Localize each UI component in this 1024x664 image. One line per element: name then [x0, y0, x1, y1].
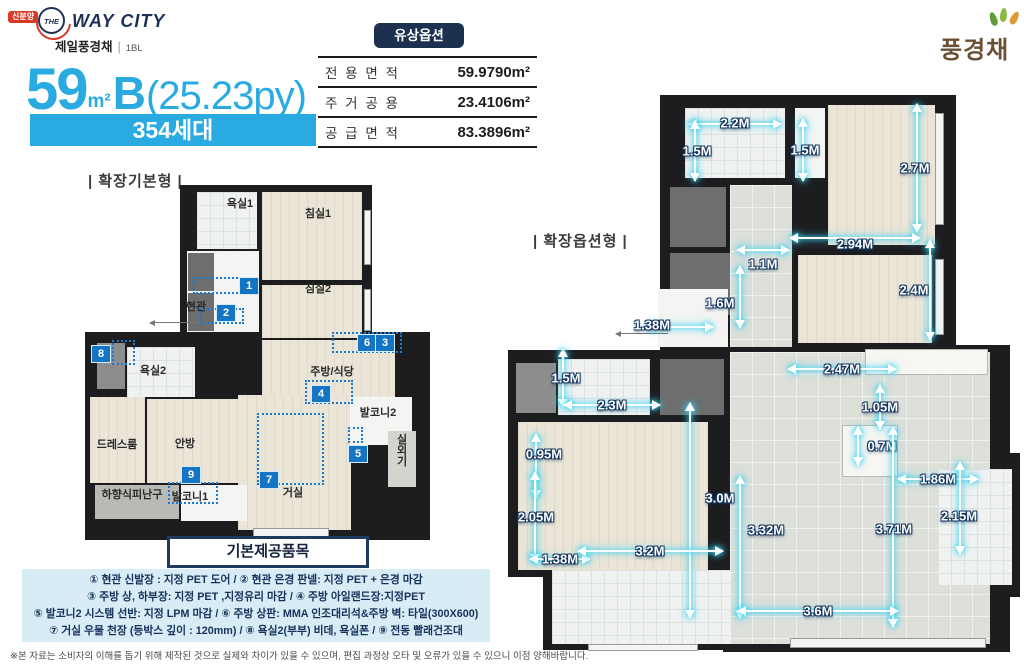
plan-marker: 2 [216, 304, 236, 322]
plan-marker: 5 [348, 445, 368, 463]
dimension-label: 3.71M [876, 522, 912, 537]
dimension-label: 1.38M [542, 552, 578, 567]
dimension-arrow [737, 249, 789, 251]
brand-name: WAY CITY [72, 11, 165, 32]
table-row: 주 거 공 용 23.4106m² [318, 86, 537, 116]
thewaycity-circle-icon: THE [38, 7, 65, 34]
plan-marker: 8 [91, 345, 111, 363]
room-label: 실외기 [393, 434, 409, 467]
dimension-label: 2.4M [900, 283, 929, 298]
dimension-arrow [739, 476, 741, 618]
plan-marker: 7 [259, 471, 279, 489]
dimension-label: 1.5M [683, 144, 712, 159]
unit-pyeong: (25.23py) [146, 74, 306, 118]
dotted-area [112, 340, 135, 365]
paid-option-badge: 유상옵션 [374, 23, 464, 48]
dimension-label: 3.0M [706, 491, 735, 506]
room-label: 욕실2 [140, 362, 166, 378]
dotted-area [193, 277, 245, 294]
subbrand-row: 제일풍경채|1BL [55, 36, 143, 55]
room-label: 침실2 [305, 280, 331, 296]
dimension-label: 3.2M [636, 544, 665, 559]
dimension-arrow [689, 403, 691, 618]
corp-logo-text: 풍경채 [940, 30, 1009, 65]
room-label: 현관 [186, 298, 206, 314]
unit-size: 59 [26, 57, 87, 122]
plan-marker: 9 [181, 466, 201, 484]
plan-marker: 6 [357, 334, 377, 352]
area-table: 전 용 면 적 59.9790m² 주 거 공 용 23.4106m² 공 급 … [318, 56, 537, 148]
disclaimer-note: ※본 자료는 소비자의 이해를 돕기 위해 제작된 것으로 실제와 차이가 있을… [10, 648, 588, 662]
room-label: 거실 [283, 484, 303, 500]
items-list: ① 현관 신발장 : 지정 PET 도어 / ② 현관 은경 판넬: 지정 PE… [22, 569, 490, 642]
dimension-label: 1.38M [634, 318, 670, 333]
flyer-page: 신분양 THE WAY CITY 제일풍경채|1BL 유상옵션 풍경채 59m²… [0, 0, 1024, 664]
area-value: 59.9790m² [457, 64, 530, 81]
leaf-icon [1008, 10, 1021, 26]
dimension-label: 1.5M [791, 143, 820, 158]
dimension-label: 2.3M [598, 398, 627, 413]
dotted-area [348, 427, 363, 443]
dimension-label: 2.94M [837, 237, 873, 252]
dimension-label: 1.86M [920, 472, 956, 487]
unit-title: 59m²B(25.23py) [26, 56, 306, 123]
dimension-label: 2.7M [901, 161, 930, 176]
table-row: 전 용 면 적 59.9790m² [318, 56, 537, 86]
room-label: 발코니1 [172, 488, 208, 504]
item-line: ③ 주방 상, 하부장: 지정 PET ,지정유리 마감 / ④ 주방 아일랜드… [22, 589, 490, 606]
dimension-label: 0.95M [526, 447, 562, 462]
dimension-label: 2.47M [824, 362, 860, 377]
floorplan-basic: 욕실1침실1침실2현관욕실2주방/식당발코니2드레스룸안방실외기하향식피난구발코… [85, 185, 430, 542]
dimension-label: 1.1M [749, 257, 778, 272]
dimension-arrow [929, 240, 931, 340]
table-row: 공 급 면 적 83.3896m² [318, 116, 537, 146]
new-sale-badge: 신분양 [8, 11, 38, 23]
dimension-label: 3.6M [804, 604, 833, 619]
logo-the-text: THE [40, 17, 63, 26]
room-label: 안방 [175, 435, 195, 451]
room-label: 하향식피난구 [102, 486, 163, 502]
plan-marker: 4 [311, 385, 331, 403]
item-line: ① 현관 신발장 : 지정 PET 도어 / ② 현관 은경 판넬: 지정 PE… [22, 572, 490, 589]
item-line: ⑦ 거실 우물 천장 (등박스 깊이 : 120mm) / ⑧ 욕실2(부부) … [22, 623, 490, 640]
unit-sqm: m² [88, 91, 111, 113]
leaf-icon [999, 8, 1007, 23]
item-line: ⑤ 발코니2 시스템 선반: 지정 LPM 마감 / ⑥ 주방 상판: MMA … [22, 606, 490, 623]
dimension-label: 3.32M [748, 523, 784, 538]
area-label: 주 거 공 용 [325, 92, 400, 112]
area-label: 전 용 면 적 [325, 62, 400, 82]
divider: | [118, 40, 121, 54]
items-box-title: 기본제공품목 [167, 536, 369, 568]
plan-marker: 1 [239, 277, 259, 295]
dimension-label: 2.2M [721, 116, 750, 131]
floorplan-option: 2.2M1.5M1.5M2.7M2.94M1.1M2.4M1.6M1.38M2.… [508, 95, 1020, 657]
dimension-label: 1.6M [706, 296, 735, 311]
unit-type: B [113, 67, 146, 119]
room-label: 주방/식당 [310, 363, 354, 379]
dimension-arrow [857, 427, 859, 465]
leaf-icon [988, 11, 999, 26]
households-band: 354세대 [30, 114, 316, 146]
plan-marker: 3 [375, 334, 395, 352]
corp-logo: 풍경채 [938, 8, 1024, 60]
dimension-label: 1.05M [862, 400, 898, 415]
plan-annotations: 욕실1침실1침실2현관욕실2주방/식당발코니2드레스룸안방실외기하향식피난구발코… [85, 185, 430, 542]
dimension-label: 1.5M [552, 371, 581, 386]
plan-dimensions: 2.2M1.5M1.5M2.7M2.94M1.1M2.4M1.6M1.38M2.… [508, 95, 1020, 657]
dimension-label: 2.05M [518, 510, 554, 525]
room-label: 침실1 [305, 205, 331, 221]
dimension-label: 2.15M [941, 509, 977, 524]
subbrand-name: 제일풍경채 [55, 40, 113, 54]
block-number: 1BL [126, 43, 143, 54]
dimension-arrow [739, 266, 741, 328]
room-label: 발코니2 [360, 404, 396, 420]
room-label: 드레스룸 [97, 436, 137, 452]
room-label: 욕실1 [227, 195, 253, 211]
area-label: 공 급 면 적 [325, 122, 400, 142]
